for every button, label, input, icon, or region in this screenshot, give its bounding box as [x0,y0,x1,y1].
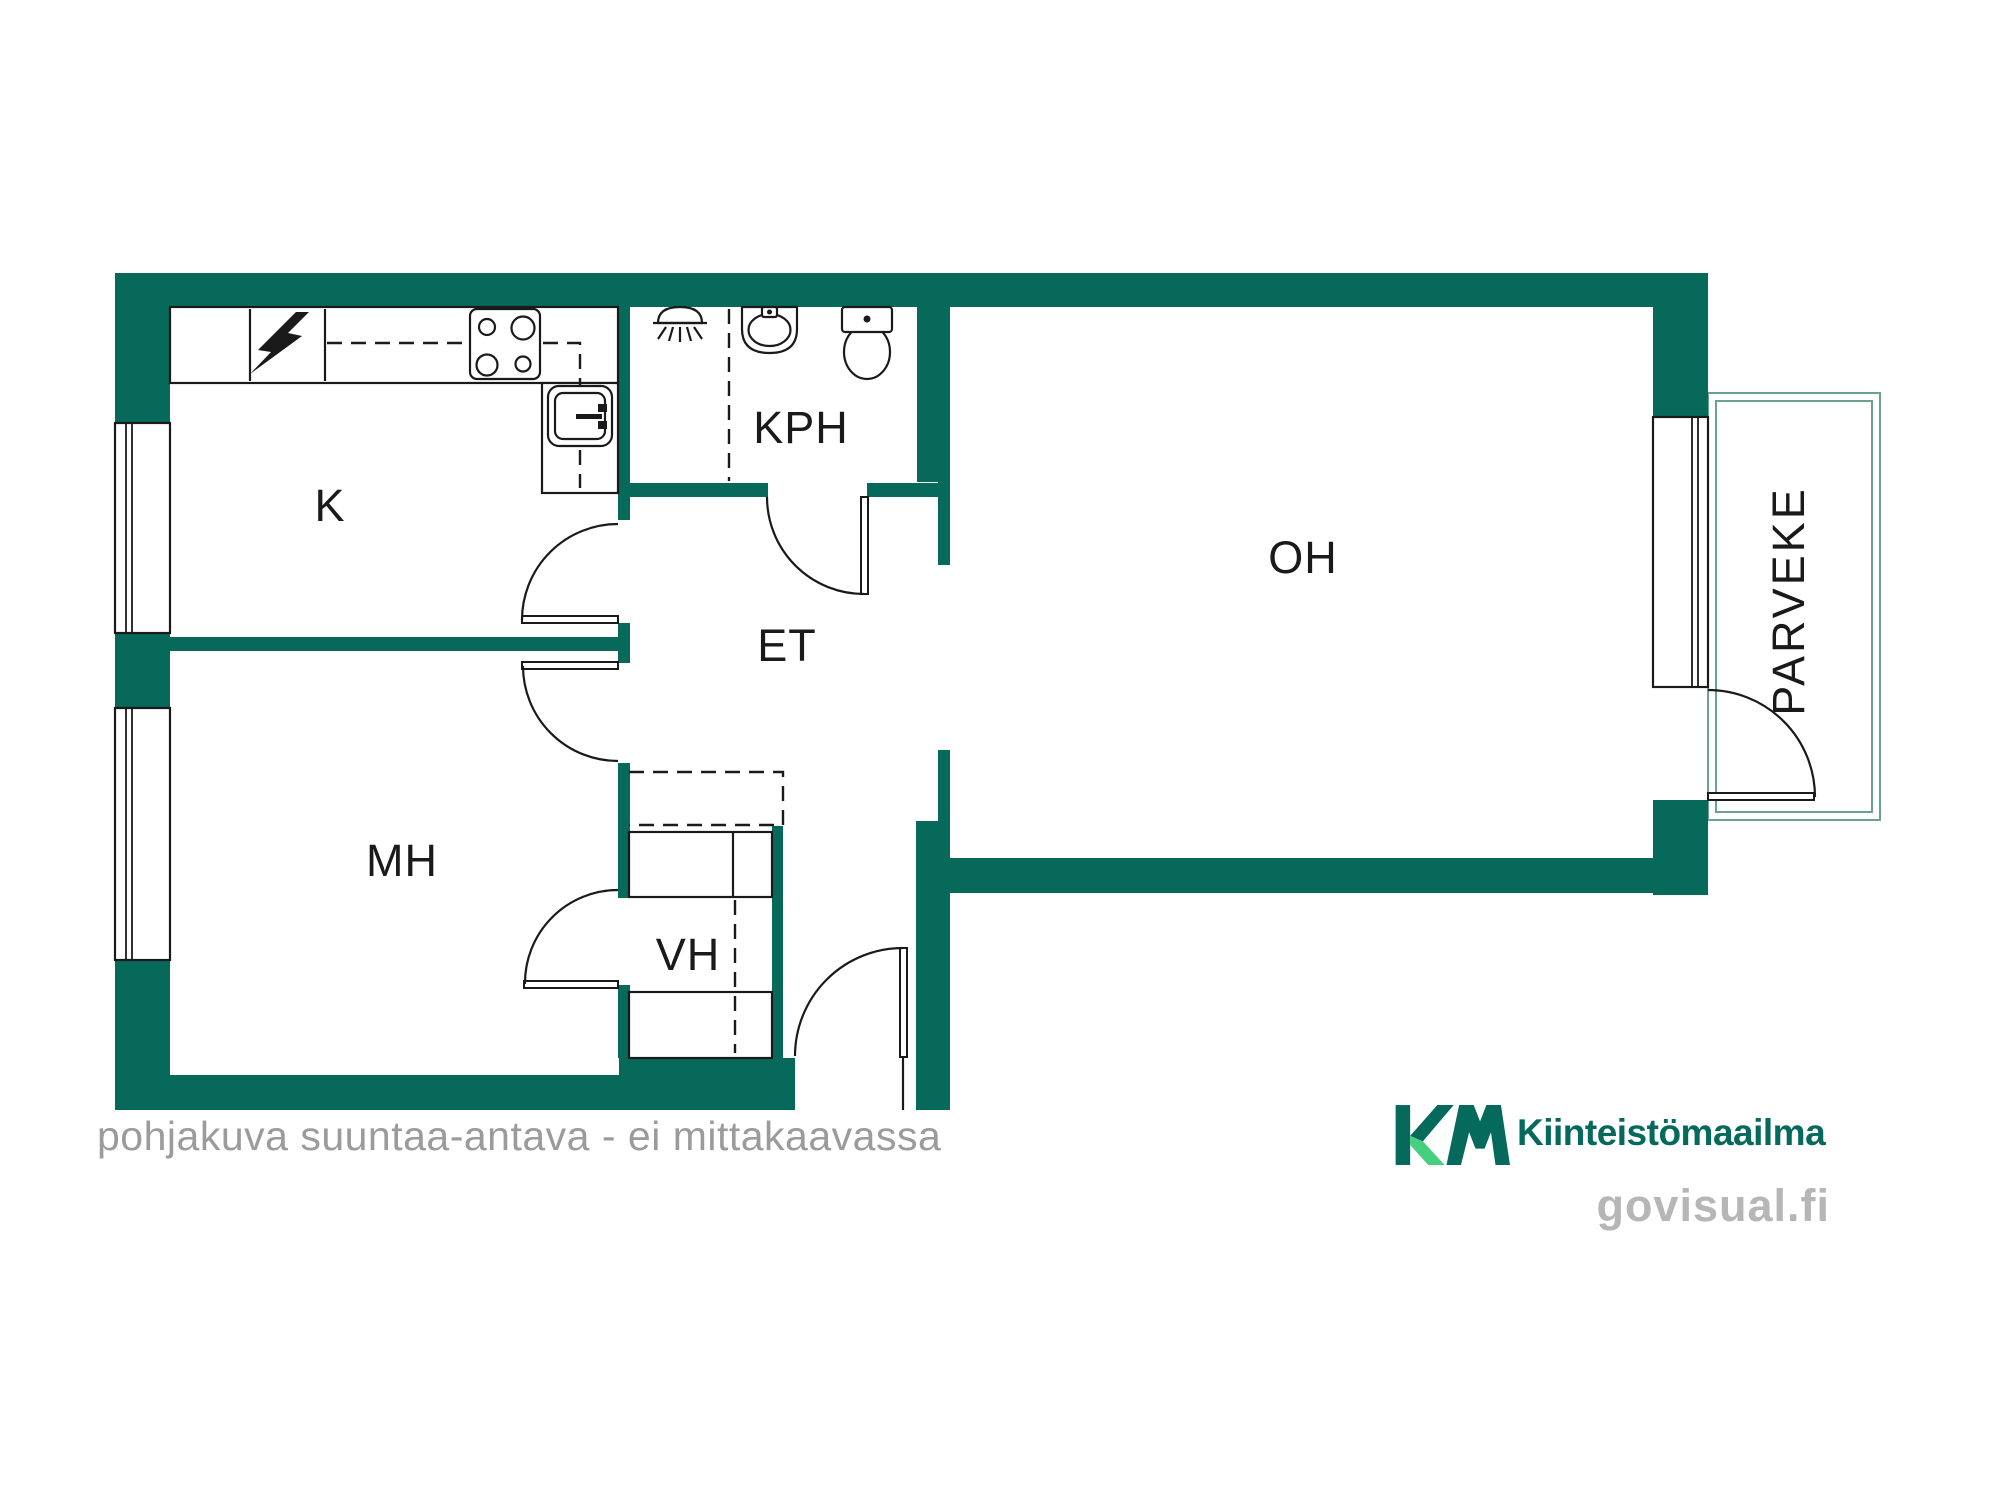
floor-plan-drawing [0,0,2000,1500]
kitchen-sink-icon [548,386,612,446]
wardrobe-dashed [629,772,783,825]
closet-fixtures [629,772,783,1058]
door-swing [522,662,618,761]
stove-icon [470,309,540,379]
window [115,423,170,633]
room-label-closet: VH [628,929,748,981]
floor-plan: K KPH ET OH MH VH PARVEKE pohjakuva suun… [0,0,2000,1500]
room-label-bedroom: MH [342,835,462,887]
shower-icon [653,307,707,342]
room-label-living: OH [1243,532,1363,584]
closet-shelf [629,992,772,1058]
watermark-text: govisual.fi [1430,1180,1830,1232]
brand-name: Kiinteistömaailma [1517,1112,1825,1154]
window [1653,417,1708,687]
closet-shelf [629,832,772,897]
washbasin-icon [742,307,797,353]
door-swing [795,948,907,1110]
door-swing [767,497,868,594]
disclaimer-text: pohjakuva suuntaa-antava - ei mittakaava… [97,1113,941,1160]
window [115,708,170,960]
kitchen-fixtures [170,307,618,493]
room-label-balcony: PARVEKE [1763,441,1815,761]
bathroom-fixtures [653,307,892,481]
room-label-hall: ET [727,620,847,672]
door-swing [522,524,618,623]
walls [115,273,1708,1110]
room-label-kitchen: K [270,480,390,532]
door-swing [524,890,618,988]
toilet-icon [842,307,892,379]
room-label-bathroom: KPH [721,402,881,454]
km-logo-mark [1392,1103,1510,1167]
